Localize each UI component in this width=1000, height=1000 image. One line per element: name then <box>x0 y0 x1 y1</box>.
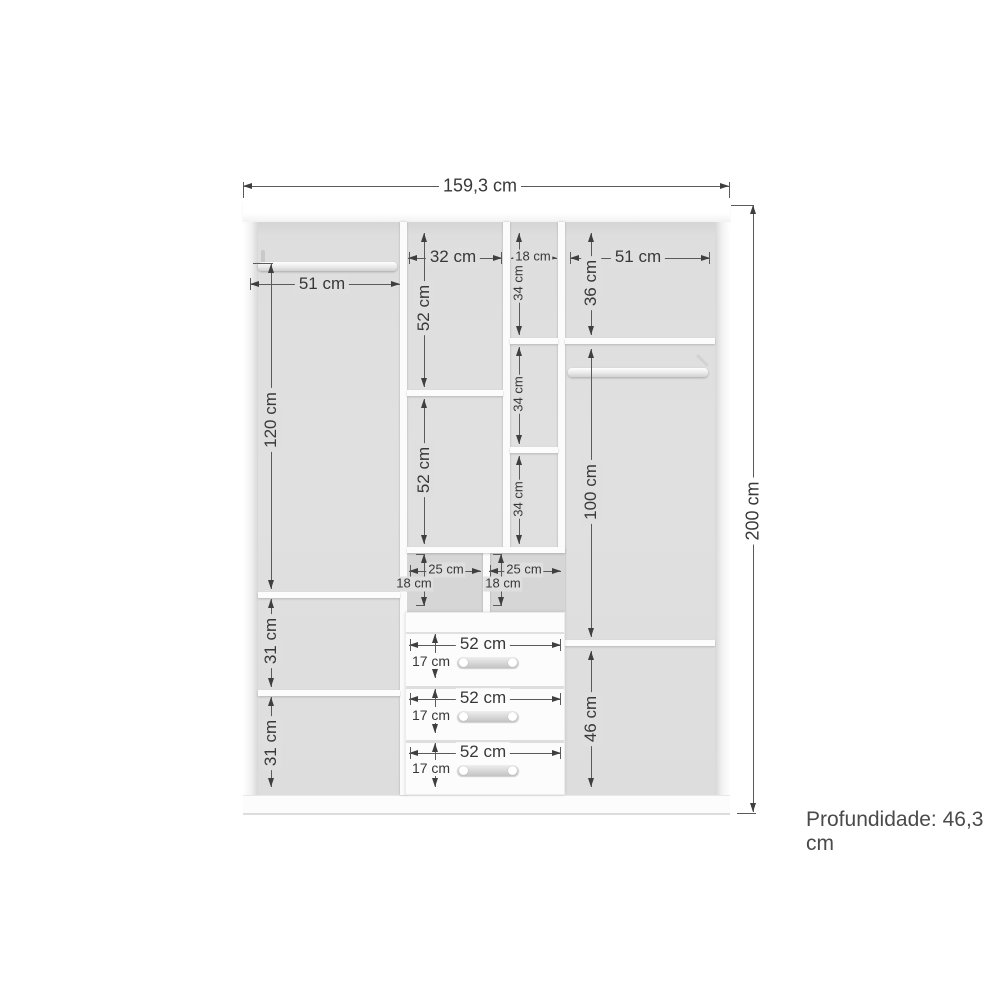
right-side-panel <box>715 222 730 795</box>
drawer-2-width-label: 52 cm <box>456 688 510 708</box>
extension-tick <box>737 813 756 814</box>
drawer-3-width-label: 52 cm <box>456 742 510 762</box>
extension-tick <box>250 278 251 290</box>
overall-width-label: 159,3 cm <box>439 176 521 197</box>
extension-tick <box>416 554 424 555</box>
shelf-narrow-column-2 <box>510 447 558 453</box>
middle-lower-height-label: 52 cm <box>414 443 434 497</box>
narrow-gap-2-label: 34 cm <box>512 374 527 413</box>
drawer-1-width-label: 52 cm <box>456 634 510 654</box>
shelf-left-column-1 <box>258 592 400 598</box>
extension-tick <box>560 639 561 651</box>
left-rod-width-label: 51 cm <box>295 274 349 294</box>
drawer-1-height-label: 17 cm <box>410 653 452 669</box>
narrow-gap-1-label: 34 cm <box>512 263 527 302</box>
plinth-base <box>243 795 730 815</box>
shelf-right-column-bottom <box>565 640 715 646</box>
cubby-left-height-label: 18 cm <box>394 577 433 592</box>
hanging-rod-right <box>568 368 708 377</box>
extension-tick <box>560 693 561 705</box>
extension-tick <box>570 252 571 264</box>
overall-height-label: 200 cm <box>743 477 764 544</box>
left-side-panel <box>243 222 258 795</box>
left-shelf-gap-2-label: 31 cm <box>261 716 281 770</box>
left-shelf-gap-1-label: 31 cm <box>261 614 281 668</box>
extension-tick <box>243 182 244 198</box>
cubby-left-width-label: 25 cm <box>426 563 465 578</box>
drawer-2-height-label: 17 cm <box>410 707 452 723</box>
middle-width-label: 32 cm <box>426 247 480 267</box>
extension-tick <box>416 605 424 606</box>
right-bottom-height-label: 46 cm <box>581 692 601 746</box>
right-middle-height-label: 100 cm <box>581 460 601 524</box>
extension-tick <box>709 252 710 264</box>
extension-tick <box>410 639 411 651</box>
middle-upper-height-label: 52 cm <box>414 281 434 335</box>
drawer-handle-3 <box>457 765 519 776</box>
extension-tick <box>729 182 730 198</box>
extension-tick <box>253 263 273 264</box>
extension-tick <box>493 605 501 606</box>
wardrobe-dimension-diagram: 159,3 cm 200 cm 51 cm 120 cm 31 cm 31 cm… <box>0 0 1000 1000</box>
extension-tick <box>409 252 410 264</box>
hanging-rod-left <box>258 262 397 271</box>
depth-label: Profundidade: 46,3 cm <box>806 808 1000 856</box>
narrow-gap-3-label: 34 cm <box>512 479 527 518</box>
extension-tick <box>731 205 754 206</box>
cubby-right-height-label: 18 cm <box>483 577 522 592</box>
drawer-3-height-label: 17 cm <box>410 760 452 776</box>
shelf-right-column-top <box>565 338 715 344</box>
wardrobe-top-panel <box>243 200 730 223</box>
vertical-divider-middle <box>503 222 510 553</box>
drawer-handle-2 <box>457 711 519 722</box>
right-width-label: 51 cm <box>611 247 665 267</box>
extension-tick <box>501 252 502 264</box>
shelf-above-cubbies <box>407 547 565 553</box>
drawer-handle-1 <box>457 657 519 668</box>
narrow-width-label: 18 cm <box>513 250 552 265</box>
shelf-left-column-2 <box>258 690 400 696</box>
extension-tick <box>560 747 561 759</box>
extension-tick <box>410 747 411 759</box>
extension-tick <box>493 554 501 555</box>
left-upper-height-label: 120 cm <box>261 388 281 452</box>
shelf-narrow-column-1 <box>510 338 558 344</box>
shelf-middle-column <box>407 390 503 396</box>
right-top-height-label: 36 cm <box>581 256 601 310</box>
extension-tick <box>410 693 411 705</box>
